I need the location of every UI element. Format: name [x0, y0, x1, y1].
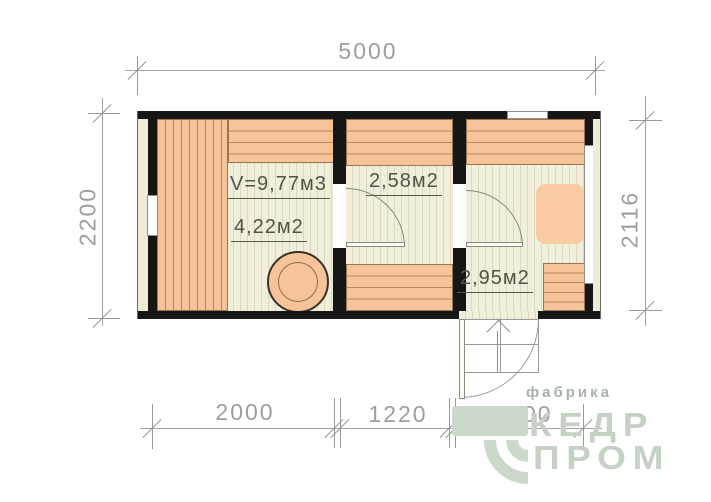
entrance-arrow-shaft [497, 331, 498, 373]
window-top [507, 111, 548, 119]
wall-left-lower [148, 235, 157, 311]
dim-left-ext-bottom [88, 318, 120, 319]
sauna-area-label: 4,22м2 [231, 216, 307, 242]
wall-top-right-segment [547, 111, 601, 119]
sauna-volume-label: V=9,77м3 [227, 173, 330, 199]
wall-top-left-segment [137, 111, 508, 119]
dim-left-ext-top [88, 113, 120, 114]
wall-bottom-left-segment [137, 311, 459, 319]
sauna-wall-planks [157, 119, 228, 311]
dim-top-line [125, 70, 605, 71]
dim-top-label: 5000 [303, 38, 433, 65]
dim-top-ext-right [595, 56, 596, 95]
door-washroom-leaf [466, 242, 523, 247]
dim-left-label: 2200 [75, 152, 102, 282]
entrance-door-leaf [459, 319, 465, 399]
wall-right-outline [600, 111, 601, 319]
floor-plan-canvas: 5000 2200 2116 2000 1220 1400 [0, 0, 711, 502]
dim-right-line [645, 96, 646, 326]
kedrprom-logo-icon [452, 406, 536, 486]
door-sauna-opening [333, 184, 346, 248]
hall-top-bench [466, 119, 585, 165]
window-left [147, 195, 158, 236]
dim-top-ext-left [137, 56, 138, 95]
stove-inner-ring [278, 262, 318, 302]
door-washroom-opening [453, 184, 466, 248]
hall-table [536, 184, 585, 244]
dim-left-line [102, 98, 103, 326]
wall-bottom-right-segment [538, 311, 601, 319]
wall-washroom-hall-upper [453, 119, 466, 184]
wall-sauna-washroom-upper [333, 119, 346, 184]
watermark-brand-bottom: ПРОМ [533, 441, 670, 474]
dim-bottom-label-1220: 1220 [348, 401, 448, 428]
dim-bottom-label-2000: 2000 [195, 399, 295, 426]
dim-bottom-ext-3a [449, 398, 450, 448]
washroom-top-bench [346, 119, 453, 166]
wall-left-upper [148, 119, 157, 196]
wall-right-cladding [593, 119, 600, 311]
building: V=9,77м3 4,22м2 2,58м2 2,95м2 [137, 111, 601, 319]
hall-area-label: 2,95м2 [457, 267, 533, 293]
washroom-bottom-bench [346, 264, 453, 311]
dim-right-label: 2116 [617, 155, 644, 285]
hall-corner-shelf [543, 263, 585, 311]
watermark-tagline: фабрика [526, 384, 612, 401]
wall-sauna-washroom-lower [333, 248, 346, 311]
dim-bottom-ext-2a [334, 398, 335, 448]
washroom-area-label: 2,58м2 [366, 170, 442, 196]
door-sauna-leaf [346, 242, 405, 247]
sauna-top-bench [228, 119, 334, 163]
wall-right-upper [585, 119, 593, 146]
wall-right-lower [585, 283, 593, 311]
watermark-brand-top: КЕДР [529, 408, 654, 441]
